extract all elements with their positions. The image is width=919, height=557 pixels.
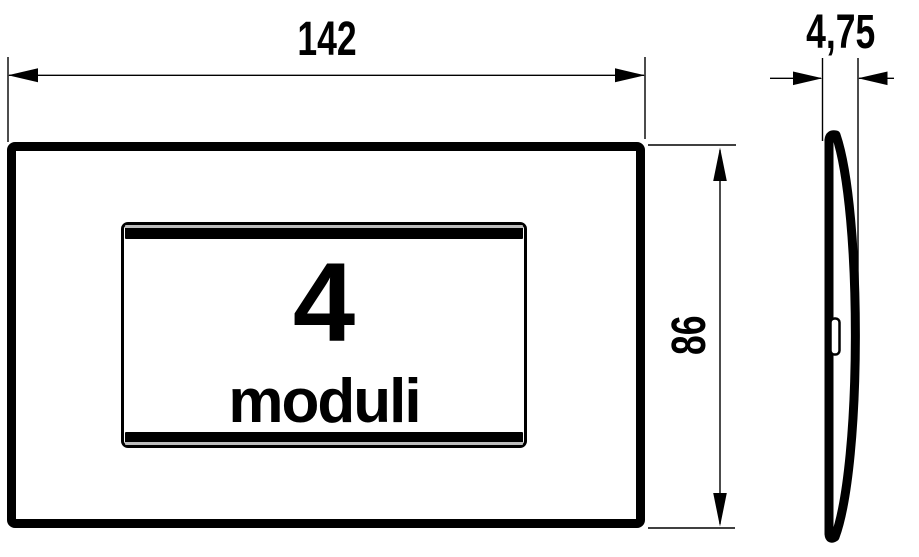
module-window-top-rail [125,225,523,239]
thickness-dimension-label: 4,75 [791,8,891,58]
arrowhead-inward-right [793,72,823,86]
arrowhead-down [713,493,727,527]
mounting-clip-detail [831,319,840,355]
technical-drawing-canvas: 4 moduli 142 86 4,75 [0,0,919,557]
module-word-label: moduli [124,371,524,433]
module-count-label: 4 [124,247,524,359]
arrowhead-left [8,68,38,82]
thickness-dimension-value: 4,75 [806,9,875,57]
arrowhead-right [615,68,645,82]
height-dimension-value: 86 [666,315,714,355]
arrowhead-inward-left [858,72,888,86]
module-window: 4 moduli [121,222,527,448]
width-dimension [8,57,645,142]
arrowhead-up [713,148,727,182]
width-dimension-label: 142 [277,15,377,65]
width-dimension-value: 142 [297,16,356,64]
height-dimension-label: 86 [665,285,715,385]
side-profile-view [829,135,855,539]
